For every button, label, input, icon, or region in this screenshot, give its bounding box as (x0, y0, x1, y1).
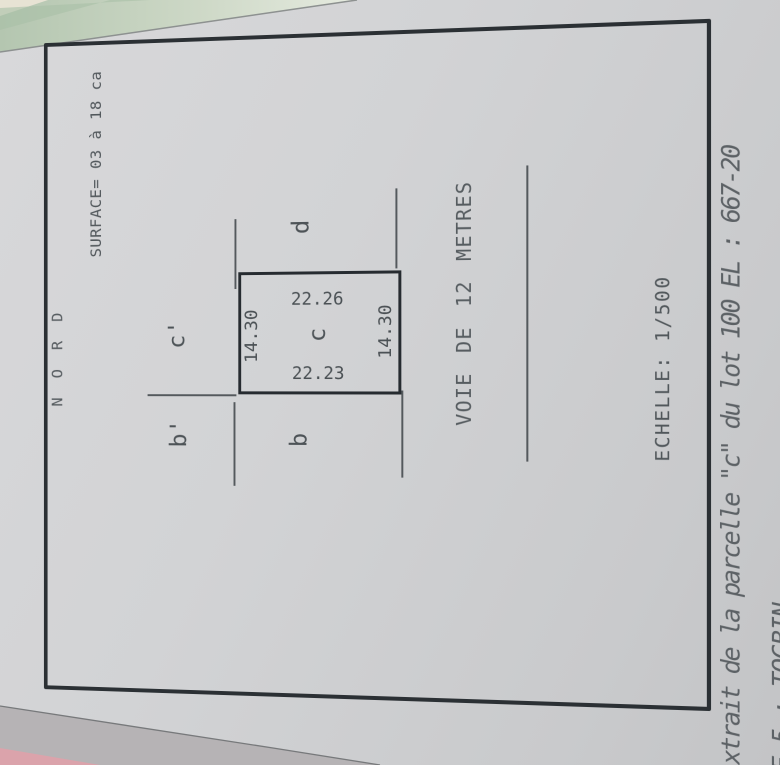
road-near-edge (401, 390, 402, 477)
dimension-left: 22.23 (291, 363, 344, 384)
parcel-c-label: c (303, 327, 330, 341)
parcel-d-label: d (287, 219, 314, 234)
photo-canvas: N O R D SURFACE= 03 à 18 ca c 14.30 14.3… (0, 0, 780, 765)
boundary-d-bottom (395, 188, 396, 268)
surface-label: SURFACE= 03 à 18 ca (87, 70, 105, 257)
north-label: N O R D (48, 307, 65, 406)
parcel-bprime-label: b' (165, 419, 191, 447)
dimension-top: 14.30 (241, 309, 261, 363)
boundary-bprime-cprime (147, 394, 236, 396)
footer-extract-text: xtrait de la parcelle "c" du lot 100 EL … (716, 145, 746, 765)
footer-zone-text: NE 5 : TOGBIN (767, 602, 780, 765)
dimension-bottom: 14.30 (375, 304, 396, 358)
plan-document: N O R D SURFACE= 03 à 18 ca c 14.30 14.3… (21, 0, 780, 765)
boundary-b-bprime (233, 402, 234, 486)
parcel-cprime-label: c' (163, 320, 189, 348)
road-far-edge (526, 165, 528, 461)
dimension-right: 22.26 (290, 288, 343, 309)
parcel-b-label: b (285, 432, 312, 446)
scale-label: ECHELLE: 1/500 (651, 275, 674, 461)
boundary-d-top (234, 219, 235, 289)
paper-tilt-wrapper: N O R D SURFACE= 03 à 18 ca c 14.30 14.3… (21, 0, 780, 765)
road-label: VOIE DE 12 METRES (451, 180, 475, 425)
